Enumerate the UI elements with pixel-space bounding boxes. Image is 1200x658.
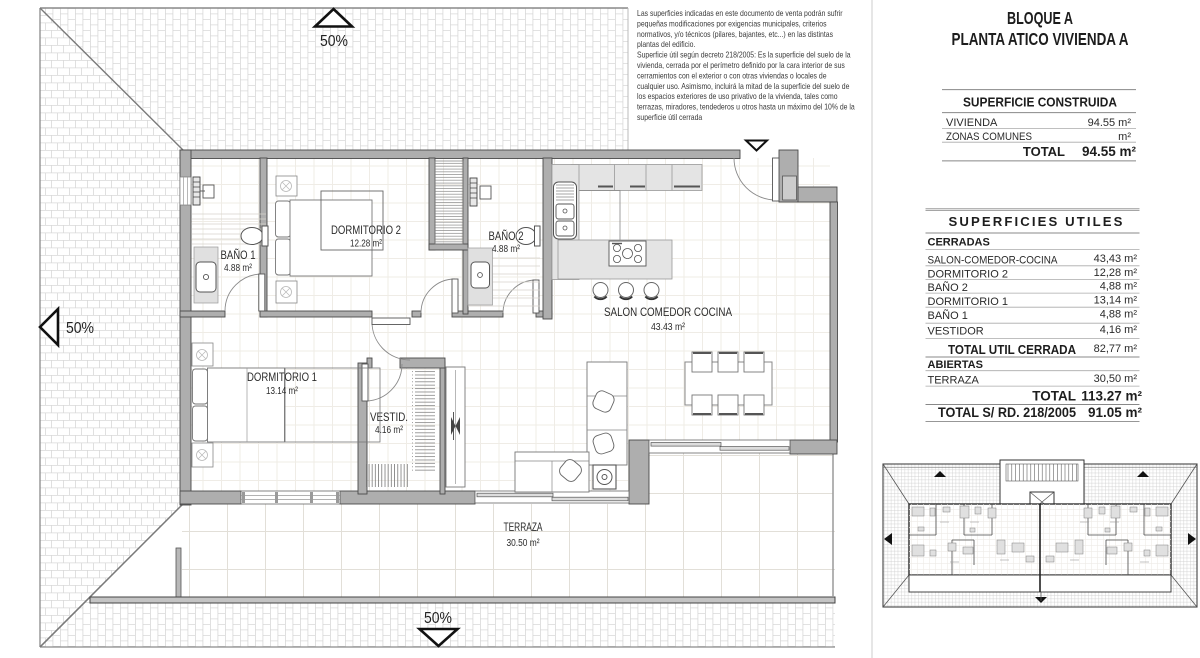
svg-text:BAÑO 1: BAÑO 1 bbox=[928, 309, 968, 322]
svg-text:TOTAL: TOTAL bbox=[1023, 144, 1065, 159]
svg-text:DORMITORIO 1: DORMITORIO 1 bbox=[247, 372, 317, 384]
svg-text:43.43 m²: 43.43 m² bbox=[651, 322, 686, 333]
svg-text:DORMITORIO 2: DORMITORIO 2 bbox=[928, 269, 1008, 281]
svg-text:50%: 50% bbox=[66, 320, 94, 337]
svg-text:TOTAL: TOTAL bbox=[1032, 389, 1076, 404]
svg-text:4.88 m²: 4.88 m² bbox=[224, 263, 253, 274]
svg-text:BAÑO 2: BAÑO 2 bbox=[928, 281, 968, 294]
svg-text:cerramientos con el exterior o: cerramientos con el exterior o con otras… bbox=[637, 71, 827, 81]
svg-text:PLANTA ATICO VIVIENDA A: PLANTA ATICO VIVIENDA A bbox=[952, 29, 1129, 49]
svg-text:VESTIDOR: VESTIDOR bbox=[928, 326, 984, 338]
svg-text:SALON-COMEDOR-COCINA: SALON-COMEDOR-COCINA bbox=[928, 254, 1059, 266]
svg-text:BAÑO 1: BAÑO 1 bbox=[221, 249, 256, 262]
svg-text:VIVIENDA: VIVIENDA bbox=[946, 117, 998, 129]
svg-text:43,43 m²: 43,43 m² bbox=[1094, 253, 1138, 265]
svg-text:30,50 m²: 30,50 m² bbox=[1094, 373, 1138, 385]
svg-text:4.88 m²: 4.88 m² bbox=[492, 244, 521, 255]
svg-text:13.14 m²: 13.14 m² bbox=[266, 386, 299, 397]
svg-text:13,14 m²: 13,14 m² bbox=[1094, 295, 1138, 307]
svg-text:superficie útil cerrada: superficie útil cerrada bbox=[637, 112, 703, 122]
svg-text:vivienda, cerrada por el perím: vivienda, cerrada por el perímetro defin… bbox=[637, 60, 845, 70]
svg-text:ZONAS COMUNES: ZONAS COMUNES bbox=[946, 131, 1032, 143]
svg-text:12,28 m²: 12,28 m² bbox=[1094, 267, 1138, 279]
svg-text:BLOQUE A: BLOQUE A bbox=[1007, 8, 1073, 28]
svg-text:SUPERFICIE CONSTRUIDA: SUPERFICIE CONSTRUIDA bbox=[963, 95, 1118, 110]
svg-text:4.16 m²: 4.16 m² bbox=[375, 425, 404, 436]
svg-text:82,77 m²: 82,77 m² bbox=[1094, 343, 1138, 355]
svg-text:plantas del edificio.: plantas del edificio. bbox=[637, 39, 695, 49]
svg-text:4,16 m²: 4,16 m² bbox=[1100, 324, 1138, 336]
svg-text:Las superficies indicadas en e: Las superficies indicadas en este docume… bbox=[637, 8, 843, 18]
svg-text:m²: m² bbox=[1118, 131, 1131, 143]
svg-text:DORMITORIO 1: DORMITORIO 1 bbox=[928, 296, 1008, 308]
svg-text:TERRAZA: TERRAZA bbox=[504, 522, 543, 534]
svg-text:50%: 50% bbox=[320, 33, 348, 50]
svg-text:BAÑO 2: BAÑO 2 bbox=[489, 230, 524, 243]
svg-text:4,88 m²: 4,88 m² bbox=[1100, 281, 1138, 293]
svg-text:SALON COMEDOR COCINA: SALON COMEDOR COCINA bbox=[604, 307, 732, 319]
svg-text:pequeñas modificaciones por ex: pequeñas modificaciones por exigencias m… bbox=[637, 19, 827, 29]
svg-text:4,88 m²: 4,88 m² bbox=[1100, 309, 1138, 321]
svg-text:normativos, y/o técnicos (pila: normativos, y/o técnicos (pilares, bajan… bbox=[637, 29, 833, 39]
svg-text:cualquier uso. Asimismo, inclu: cualquier uso. Asimismo, incluirá la mit… bbox=[637, 81, 849, 91]
svg-text:los espacios exteriores de uso: los espacios exteriores de uso privativo… bbox=[637, 91, 838, 101]
svg-text:CERRADAS: CERRADAS bbox=[928, 237, 990, 249]
svg-text:113.27 m²: 113.27 m² bbox=[1081, 389, 1142, 404]
svg-text:91.05 m²: 91.05 m² bbox=[1088, 405, 1143, 420]
svg-text:TOTAL S/ RD. 218/2005: TOTAL S/ RD. 218/2005 bbox=[938, 405, 1076, 420]
svg-text:VESTID.: VESTID. bbox=[370, 412, 408, 424]
svg-text:SUPERFICIES UTILES: SUPERFICIES UTILES bbox=[949, 215, 1125, 229]
svg-text:DORMITORIO 2: DORMITORIO 2 bbox=[331, 225, 401, 237]
svg-text:TOTAL UTIL CERRADA: TOTAL UTIL CERRADA bbox=[948, 342, 1077, 357]
svg-text:terrazas, miradores, tendedero: terrazas, miradores, tendederos u otros … bbox=[637, 102, 855, 112]
svg-text:94.55 m²: 94.55 m² bbox=[1088, 117, 1132, 129]
svg-text:Superficie útil según decreto: Superficie útil según decreto 218/2005: … bbox=[637, 50, 851, 60]
svg-text:TERRAZA: TERRAZA bbox=[928, 375, 980, 387]
svg-text:ABIERTAS: ABIERTAS bbox=[928, 359, 983, 371]
svg-text:50%: 50% bbox=[424, 610, 452, 627]
svg-text:30.50 m²: 30.50 m² bbox=[507, 538, 541, 549]
svg-text:12.28 m²: 12.28 m² bbox=[350, 239, 383, 250]
svg-text:94.55 m²: 94.55 m² bbox=[1082, 144, 1137, 159]
